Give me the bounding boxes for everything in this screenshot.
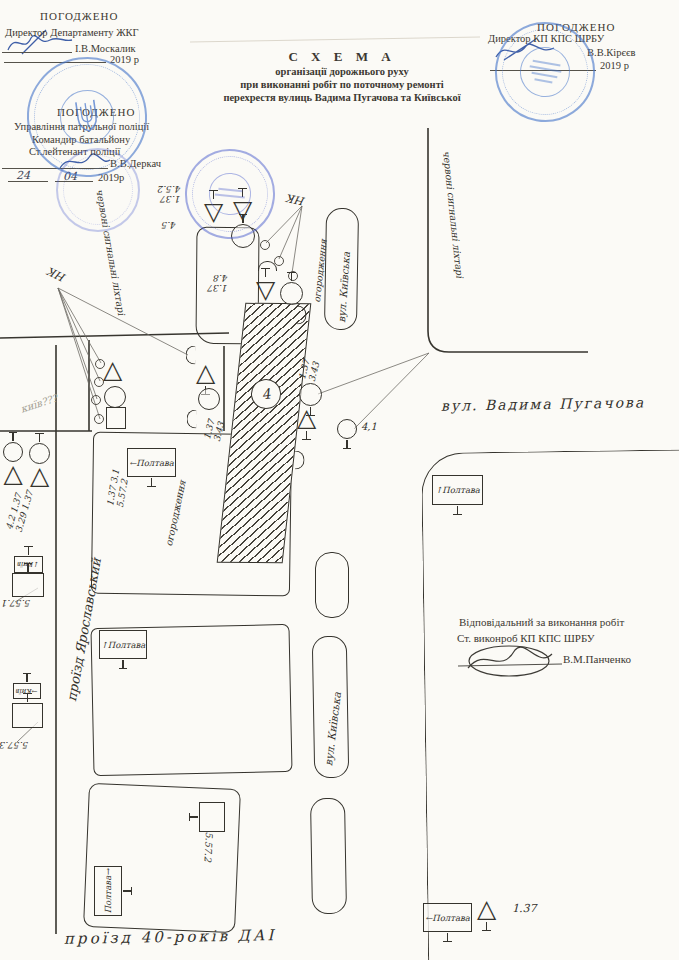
label-line: 4.5 xyxy=(162,220,176,230)
sign-post xyxy=(28,547,29,555)
block-southeast xyxy=(421,449,679,960)
circle-sign-icon xyxy=(280,282,303,305)
approval-police-day: 24 xyxy=(16,169,30,182)
responsible-line1: Відповідальний за виконання робіт xyxy=(459,616,624,629)
trident-emblem-icon xyxy=(72,97,103,136)
sign-stack-circle-triangle-1 xyxy=(3,432,23,486)
traffic-island-2 xyxy=(310,798,347,915)
poltava-direction-sign: ↑Полтава xyxy=(432,475,483,505)
scheme-title-line3: при виконанні робіт по поточному ремонті xyxy=(217,79,467,91)
signal-lantern-icon xyxy=(94,414,104,424)
legend-roadworks-triangle xyxy=(477,897,496,931)
signal-lantern-icon xyxy=(260,240,270,250)
responsible-line2: Ст. виконроб КП КПС ШРБУ xyxy=(457,632,595,645)
sign-post xyxy=(26,674,27,682)
responsible-name: В.М.Панченко xyxy=(563,653,631,666)
sign-stack-circle-triangle-2 xyxy=(29,433,50,488)
distance-label: 4,1 xyxy=(361,421,377,432)
label-line: 4.5.2 xyxy=(158,183,181,193)
signature-rule xyxy=(2,52,72,53)
sign-code-label-edge1: 5.57.1 xyxy=(2,598,31,608)
sign-triangle-inverted-3 xyxy=(256,268,275,302)
blank-rect-sign xyxy=(12,573,44,597)
scanned-traffic-scheme-page: 4 ПОГОДЖЕНО Директор Департаменту ЖКГ І.… xyxy=(0,0,679,960)
sign-code-label-top-circle: 4.5 xyxy=(162,220,176,230)
sign-poltava-southeast: ↑Полтава xyxy=(432,475,483,515)
sign-rect-blank-5571 xyxy=(12,563,44,597)
sign-circle-2 xyxy=(280,272,303,305)
label-line: 1.37 xyxy=(158,193,181,203)
legend-triangle-label: 1.37 xyxy=(512,902,537,915)
scheme-title-line4: перехрестя вулиць Вадима Пугачова та Киї… xyxy=(212,92,472,104)
sign-text: ←Полтава xyxy=(425,913,470,923)
sign-post xyxy=(122,660,123,668)
sign-post xyxy=(306,431,307,439)
paper-crease-line xyxy=(190,37,480,42)
traffic-island-1 xyxy=(315,552,349,618)
stamp-ring-text xyxy=(63,155,133,225)
sign-poltava-block-c: Полтава→ xyxy=(94,866,132,916)
triangle-down-sign-icon xyxy=(256,278,275,302)
sign-triangle-up-3 xyxy=(297,406,316,440)
road-edge-pugachova-north-west xyxy=(0,333,229,338)
street-name-40-rokiv-dai: проїзд 40-років ДАІ xyxy=(64,926,277,948)
sign-rect-blank-block-c xyxy=(189,802,225,832)
sign-rect-blank-5573 xyxy=(12,693,43,728)
sign-post xyxy=(457,506,458,514)
sign-post xyxy=(39,434,40,442)
round-stamp-police-faint xyxy=(56,148,140,232)
approval-shrbu-year: 2019 р xyxy=(600,60,629,72)
sign-text: ←Полтава xyxy=(129,458,174,468)
sign-post xyxy=(12,433,13,441)
triangle-sign-icon xyxy=(297,406,316,430)
approval-zhkg-role: Директор Департаменту ЖКГ xyxy=(5,27,139,39)
poltava-direction-sign: ←Полтава xyxy=(423,903,472,932)
label-line: 4.8 xyxy=(208,272,228,282)
label-line: 5.57.2 xyxy=(202,831,214,862)
blank-rect-sign xyxy=(199,802,225,832)
sign-triangle-up-1 xyxy=(103,358,122,382)
triangle-sign-icon xyxy=(103,358,122,382)
sign-post xyxy=(346,440,347,448)
sign-circle-4 xyxy=(198,388,220,410)
guide-lines-right xyxy=(318,353,429,429)
sign-post xyxy=(190,816,198,817)
label-line: 1.37 xyxy=(208,282,228,292)
triangle-sign-icon xyxy=(30,464,49,488)
legend-poltava-sign: ←Полтава xyxy=(423,903,472,942)
sign-text: ↑Полтава xyxy=(101,640,146,650)
sign-post xyxy=(151,478,152,486)
sign-circle-distance xyxy=(337,419,357,449)
approval-zhkg-agreed: ПОГОДЖЕНО xyxy=(40,10,118,23)
zone-number-text: 4 xyxy=(260,385,271,402)
sign-post xyxy=(447,933,448,941)
sign-post xyxy=(486,922,487,930)
sign-post xyxy=(291,273,292,281)
scheme-title: С Х Е М А xyxy=(232,50,452,65)
sign-post xyxy=(265,269,266,277)
scheme-title-line2: організації дорожнього руху xyxy=(232,66,452,78)
sign-post xyxy=(27,564,28,572)
sign-code-label-top-pair: 1.37 4.5.2 xyxy=(158,183,181,204)
blank-rect-sign xyxy=(12,703,43,728)
triangle-sign-icon xyxy=(3,462,22,486)
sign-code-label-block-c: 5.57.2 xyxy=(202,831,214,862)
sign-code-label-mid-pair: 1.37 4.8 xyxy=(208,272,228,293)
sign-poltava-block-a: ←Полтава xyxy=(127,448,176,487)
triangle-sign-icon xyxy=(196,361,215,385)
label-line: 5.57.1 xyxy=(2,598,31,608)
sign-circle-3 xyxy=(104,386,126,408)
sign-text: Полтава→ xyxy=(103,869,113,914)
barrier-dome-icon xyxy=(186,346,196,365)
sign-rect-blank-1 xyxy=(106,407,126,429)
sign-code-label-edge2: 5.57.3 xyxy=(0,740,29,750)
barrier-dome-icon xyxy=(187,410,197,429)
label-line: 5.57.3 xyxy=(0,740,29,750)
sign-post xyxy=(27,694,28,702)
signal-lantern-icon xyxy=(91,395,101,405)
triangle-sign-icon xyxy=(477,897,496,921)
circle-sign-icon xyxy=(337,419,357,439)
sign-text: ↑Полтава xyxy=(435,485,480,495)
poltava-direction-sign: ←Полтава xyxy=(127,448,176,477)
poltava-direction-sign: ↑Полтава xyxy=(99,630,147,659)
sign-poltava-block-b: ↑Полтава xyxy=(99,630,147,669)
approval-shrbu-name: В.В.Кірєєв xyxy=(587,47,635,59)
poltava-direction-sign: Полтава→ xyxy=(94,866,122,916)
sign-post xyxy=(123,890,131,891)
